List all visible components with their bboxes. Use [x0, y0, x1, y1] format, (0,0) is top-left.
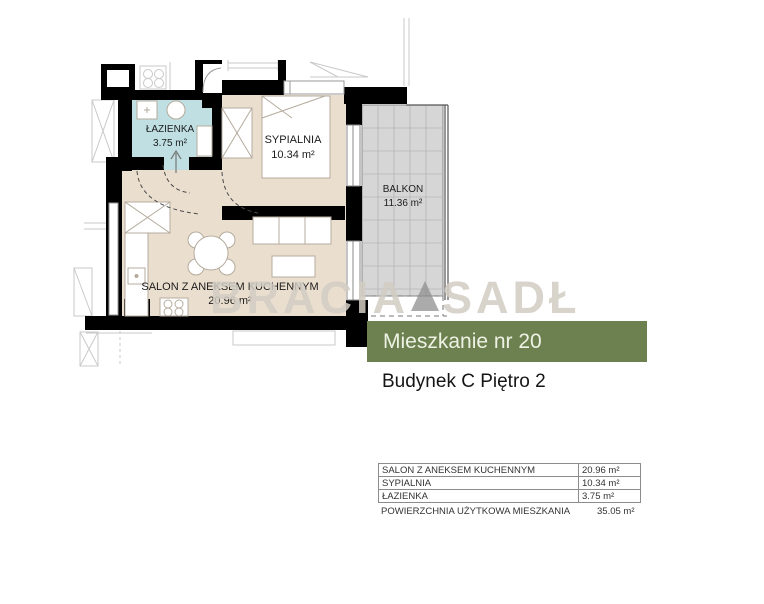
- lower-neighbor-balcony: [233, 331, 335, 345]
- upper-balcony-divider: [404, 18, 409, 86]
- floorplan-page: ŁAZIENKA 3.75 m² SYPIALNIA 10.34 m² SALO…: [0, 0, 764, 604]
- table-row: SYPIALNIA 10.34 m²: [379, 477, 641, 490]
- neighbor-stove-icon: [140, 62, 170, 90]
- room-area-cell: 20.96 m²: [579, 464, 641, 477]
- bedroom-window: [347, 125, 360, 186]
- coffee-table: [272, 256, 315, 277]
- total-area-value: 35.05 m²: [589, 506, 635, 517]
- balcony-area: 11.36 m²: [384, 198, 423, 209]
- room-balcony: [362, 105, 448, 316]
- left-wall-window: [109, 203, 118, 315]
- bedroom-area: 10.34 m²: [271, 149, 315, 161]
- balcony-label: BALKON: [383, 184, 424, 195]
- building-floor-subtitle: Budynek C Piętro 2: [382, 371, 546, 393]
- salon-label: SALON Z ANEKSEM KUCHENNYM: [141, 281, 318, 293]
- title-bar: Mieszkanie nr 20: [367, 321, 647, 362]
- salon-window: [347, 241, 360, 300]
- top-wall-window: [284, 81, 344, 94]
- table-row: SALON Z ANEKSEM KUCHENNYM 20.96 m²: [379, 464, 641, 477]
- salon-wardrobe: [125, 202, 170, 233]
- apartment-title: Mieszkanie nr 20: [367, 330, 542, 354]
- neighbor-wardrobe: [92, 100, 114, 162]
- balcony-lower-dashed: [362, 296, 447, 316]
- top-window-band: [228, 60, 278, 71]
- neighbor-bed-lines: [310, 62, 368, 77]
- total-area-label: POWIERZCHNIA UŻYTKOWA MIESZKANIA: [378, 506, 589, 517]
- room-name-cell: ŁAZIENKA: [379, 490, 579, 503]
- room-area-cell: 3.75 m²: [579, 490, 641, 503]
- room-name-cell: SALON Z ANEKSEM KUCHENNYM: [379, 464, 579, 477]
- room-area-cell: 10.34 m²: [579, 477, 641, 490]
- bedroom-label: SYPIALNIA: [265, 134, 323, 146]
- bathroom-sink-icon: [167, 101, 185, 119]
- salon-area: 20.96 m²: [208, 295, 252, 307]
- bathroom-cabinet: [197, 126, 212, 156]
- dining-table-icon: [188, 232, 235, 275]
- stove-icon: [160, 298, 188, 316]
- bedroom-wardrobe: [222, 108, 252, 158]
- sofa: [253, 217, 331, 244]
- bathroom-area: 3.75 m²: [153, 138, 188, 149]
- area-table: SALON Z ANEKSEM KUCHENNYM 20.96 m² SYPIA…: [378, 463, 641, 503]
- bathroom-label: ŁAZIENKA: [146, 124, 195, 135]
- room-name-cell: SYPIALNIA: [379, 477, 579, 490]
- table-row: ŁAZIENKA 3.75 m²: [379, 490, 641, 503]
- total-area-row: POWIERZCHNIA UŻYTKOWA MIESZKANIA 35.05 m…: [378, 506, 641, 517]
